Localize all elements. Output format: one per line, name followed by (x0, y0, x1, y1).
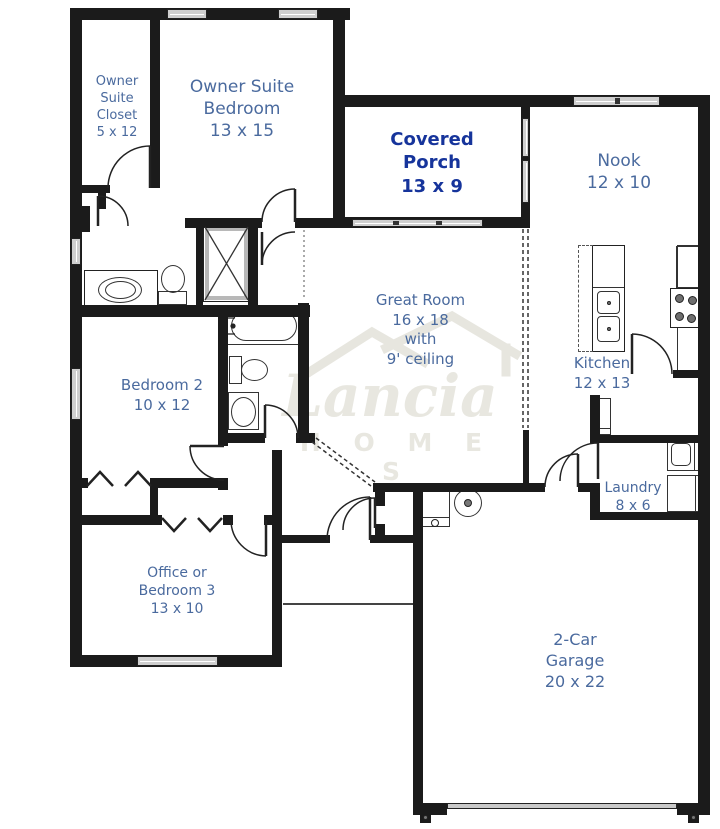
room-label-bedroom-2: Bedroom 210 x 12 (98, 376, 226, 415)
room-label-laundry: Laundry8 x 6 (597, 479, 669, 515)
room-label-covered-porch: CoveredPorch13 x 9 (358, 128, 506, 198)
room-label-owner-suite-bedroom: Owner SuiteBedroom13 x 15 (163, 76, 321, 142)
room-label-owner-suite-closet: OwnerSuite Closet5 x 12 (82, 74, 152, 142)
room-label-kitchen: Kitchen12 x 13 (556, 354, 648, 393)
room-label-great-room: Great Room16 x 18 with9' ceiling (343, 291, 498, 369)
floor-plan: Lancia H O M E S (0, 0, 720, 829)
room-label-nook: Nook12 x 10 (553, 150, 685, 194)
room-label-office-or-bedroom-3: Office orBedroom 313 x 10 (113, 564, 241, 619)
room-label-2-car-garage: 2-CarGarage20 x 22 (509, 630, 641, 692)
room-labels: OwnerSuite Closet5 x 12 Owner SuiteBedro… (0, 0, 720, 829)
